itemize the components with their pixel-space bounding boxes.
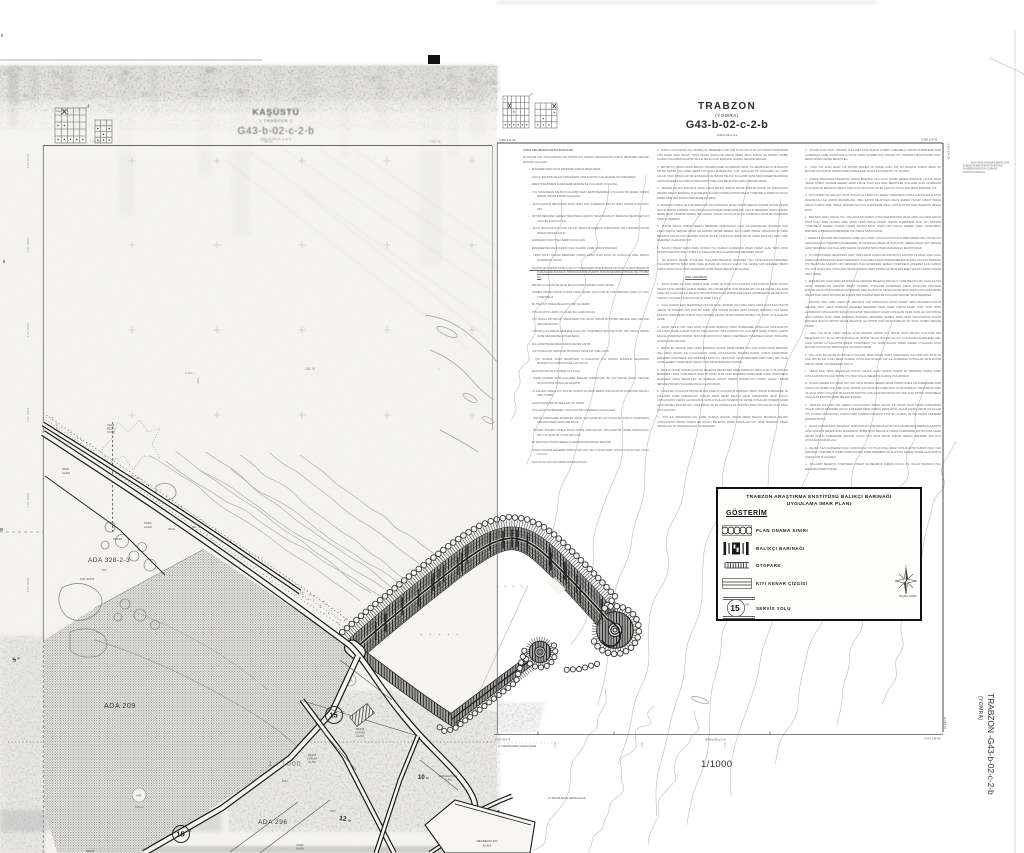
svg-text:2647: 2647	[282, 779, 288, 783]
svg-text:VALILIK RIHTIM YAPI HICBIR ALI: VALILIK RIHTIM YAPI HICBIR ALINMADAN CEV…	[971, 162, 1009, 165]
svg-text:ALANI: ALANI	[308, 760, 316, 764]
svg-text:ALANI: ALANI	[356, 734, 364, 738]
svg-text:ALANI: ALANI	[483, 844, 492, 848]
svg-text:4 557 24500: 4 557 24500	[26, 237, 30, 252]
svg-text:15: 15	[176, 830, 184, 839]
svg-text:+: +	[504, 584, 507, 589]
svg-text:ALANI: ALANI	[62, 471, 70, 475]
svg-text:326/2: 326/2	[168, 527, 175, 531]
svg-text:4 556 124 30: 4 556 124 30	[921, 138, 938, 142]
svg-text:PARK: PARK	[296, 843, 303, 847]
svg-text:NİA: NİA	[102, 567, 107, 572]
svg-text:4 557 33000: 4 557 33000	[26, 322, 30, 337]
svg-text:4 557 124 30: 4 557 124 30	[947, 143, 951, 160]
svg-text:G 1 METRELERDE GERİALANLAR: G 1 METRELERDE GERİALANLAR	[498, 745, 537, 748]
svg-text:BU BELEDIYE IMAR RIHTIM ETUD B: BU BELEDIYE IMAR RIHTIM ETUD BELIRTILEN	[963, 165, 1003, 168]
svg-text:m: m	[189, 829, 192, 833]
svg-text:KAT CEVRE KANUN YAPI KAMU MUDU: KAT CEVRE KANUN YAPI KAMU MUDURLUGU	[963, 171, 985, 174]
svg-text:MES/2: MES/2	[107, 427, 115, 431]
svg-text:4 557 024 79: 4 557 024 79	[495, 738, 511, 742]
svg-text:-1.50: -1.50	[723, 742, 727, 748]
svg-text:ALANI: ALANI	[444, 777, 452, 781]
svg-text:4 557 41500: 4 557 41500	[26, 407, 30, 422]
svg-text:SAHA MENDIREK KURUM SEKILDE UY: SAHA MENDIREK KURUM SEKILDE UYGULAMA ARA…	[963, 168, 997, 171]
svg-text:m: m	[746, 603, 749, 607]
svg-text:165-74: 165-74	[305, 367, 315, 371]
svg-text:45: 45	[504, 99, 507, 101]
svg-text:TED/3: TED/3	[107, 423, 115, 427]
svg-text:m: m	[342, 710, 345, 714]
svg-text:Liman: Liman	[197, 377, 200, 384]
svg-text:ALANI: ALANI	[144, 525, 152, 529]
svg-text:+: +	[520, 584, 523, 589]
svg-text:KAV 326/3: KAV 326/3	[80, 577, 94, 581]
svg-text:4 556 750: 4 556 750	[430, 141, 441, 144]
svg-text:KON/2: KON/2	[107, 430, 115, 434]
svg-text:ADA 296: ADA 296	[258, 819, 288, 826]
svg-text:-1.50: -1.50	[640, 742, 644, 748]
svg-text:4 557 58500: 4 557 58500	[26, 577, 30, 592]
svg-text:MİA: MİA	[136, 793, 141, 798]
svg-text:REKREASYON: REKREASYON	[477, 839, 498, 843]
svg-text:4 557 50000: 4 557 50000	[26, 492, 30, 507]
svg-text:4 557 16100: 4 557 16100	[26, 153, 30, 168]
svg-text:ALANI: ALANI	[296, 846, 304, 850]
svg-text:-5.0: -5.0	[595, 626, 599, 631]
svg-text:ADA 328-2-3: ADA 328-2-3	[88, 557, 130, 564]
svg-text:G43-b-02-c-2-d: G43-b-02-c-2-d	[705, 738, 726, 742]
svg-text:67 192.31: 67 192.31	[943, 716, 947, 729]
svg-text:0 1 METRE ARASI GERİALANLAR: 0 1 METRE ARASI GERİALANLAR	[548, 797, 586, 800]
svg-text:ADA 209: ADA 209	[104, 701, 136, 710]
svg-text:4 556 214 30: 4 556 214 30	[499, 138, 516, 142]
svg-text:-1.50: -1.50	[553, 742, 557, 748]
svg-text:4 557 138 49: 4 557 138 49	[924, 737, 941, 741]
svg-text:2647: 2647	[330, 809, 336, 813]
svg-text:KURUM: KURUM	[355, 730, 366, 734]
svg-text:K: K	[905, 565, 907, 569]
svg-text:A4: A4	[192, 525, 196, 529]
svg-text:+: +	[512, 584, 515, 589]
svg-text:1 : 1000: 1 : 1000	[268, 759, 302, 768]
svg-text:15: 15	[730, 603, 740, 613]
svg-text:KURUM: KURUM	[307, 756, 318, 760]
svg-text:2935.09: 2935.09	[135, 806, 144, 809]
svg-text:REKREASYON: REKREASYON	[439, 774, 458, 778]
svg-text:S-762 +: S-762 +	[185, 371, 195, 375]
svg-text:15: 15	[329, 711, 337, 720]
svg-text:KON/2: KON/2	[113, 537, 122, 541]
